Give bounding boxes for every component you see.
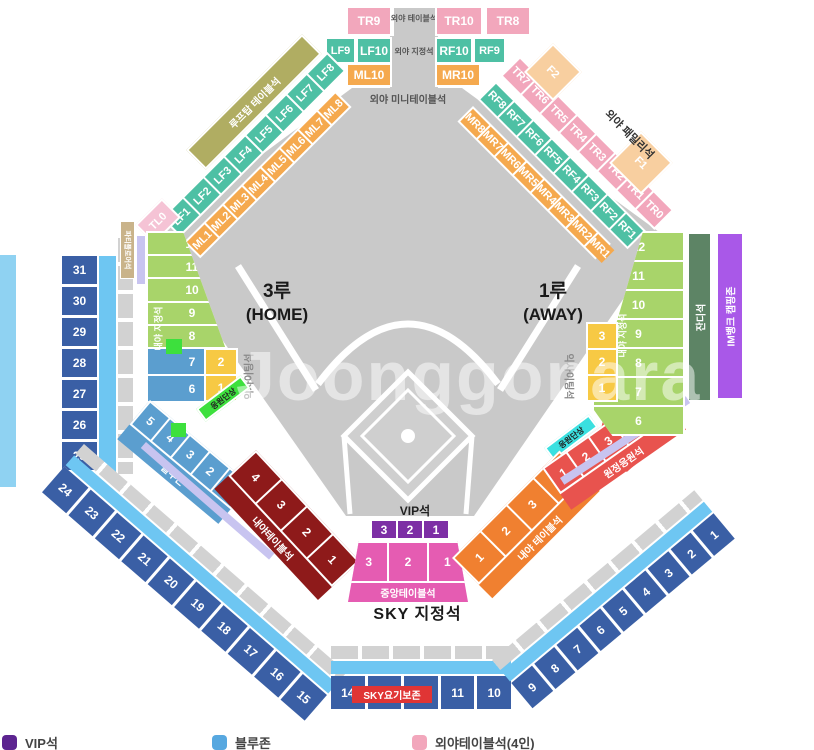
lavender-strip-left xyxy=(137,236,145,284)
legend-item-outfield-table: 외야테이블석(4인) xyxy=(412,733,535,750)
seat-section-lf10[interactable]: LF10 xyxy=(356,37,392,64)
third-base-home: (HOME) xyxy=(222,304,332,325)
sky-section-27[interactable]: 27 xyxy=(62,380,97,408)
outfield-reserved-label: 외야 지정석 xyxy=(390,46,438,57)
stadium-seat-map: 3루 (HOME) 1루 (AWAY) VIP석 TR9 외야 테이블석 TR1… xyxy=(0,0,814,750)
center-table-section-2[interactable]: 2 xyxy=(389,543,426,581)
first-base-number: 1루 xyxy=(498,280,608,304)
third-base-number: 3루 xyxy=(222,280,332,304)
exciting-section-3[interactable]: 3 xyxy=(588,324,616,348)
sky-walkway-bottom xyxy=(331,661,511,674)
vip-zone-label: VIP석 xyxy=(386,502,444,519)
legend-label-vip: VIP석 xyxy=(25,733,58,750)
exciting-section-2[interactable]: 2 xyxy=(206,350,236,374)
seat-section-tr10[interactable]: TR10 xyxy=(435,6,483,36)
seat-section-rf10[interactable]: RF10 xyxy=(435,37,473,64)
sky-section-11[interactable]: 11 xyxy=(441,676,475,709)
legend-label-bluezone: 블루존 xyxy=(235,733,271,750)
third-base-label: 3루 (HOME) xyxy=(222,280,332,325)
legend-swatch-vip xyxy=(2,735,17,750)
outer-walkway-band-left xyxy=(0,255,16,487)
center-table-label: 중앙테이블석 xyxy=(348,583,468,602)
legend-item-bluezone: 블루존 xyxy=(212,733,271,750)
exciting-section-1[interactable]: 1 xyxy=(588,376,616,400)
sky-section-30[interactable]: 30 xyxy=(62,287,97,315)
sky-section-26[interactable]: 26 xyxy=(62,411,97,439)
sky-walkway-left xyxy=(99,256,116,474)
cheer-mark-left-upper xyxy=(166,339,182,354)
seat-section-mr10[interactable]: MR10 xyxy=(435,63,481,87)
vip-sections: 321 xyxy=(370,519,450,540)
legend-swatch-outfield-table xyxy=(412,735,427,750)
outfield-mini-table-label: 외야 미니테이블석 xyxy=(358,91,458,106)
seat-section-tr8[interactable]: TR8 xyxy=(485,6,531,36)
seat-section-rf9[interactable]: RF9 xyxy=(473,37,506,64)
legend-item-vip: VIP석 xyxy=(2,733,58,750)
sky-reserved-label: SKY 지정석 xyxy=(350,605,485,625)
first-base-label: 1루 (AWAY) xyxy=(498,280,608,325)
seat-section-ml10[interactable]: ML10 xyxy=(346,63,392,87)
vip-section-1[interactable]: 1 xyxy=(424,521,448,538)
camping-zone[interactable] xyxy=(716,232,744,400)
party-floor-zone[interactable] xyxy=(120,221,135,279)
seat-section-tr9[interactable]: TR9 xyxy=(346,6,392,36)
legend-label-outfield-table: 외야테이블석(4인) xyxy=(435,733,535,750)
exciting-section-2[interactable]: 2 xyxy=(588,350,616,374)
sky-left-column: 31302928272625 xyxy=(62,256,97,470)
outfield-table-label: 외야 테이블석 xyxy=(390,13,438,24)
sky-section-29[interactable]: 29 xyxy=(62,318,97,346)
legend-swatch-bluezone xyxy=(212,735,227,750)
sky-section-31[interactable]: 31 xyxy=(62,256,97,284)
vip-section-2[interactable]: 2 xyxy=(398,521,422,538)
center-table-zone: 321 중앙테이블석 xyxy=(348,541,468,602)
sky-section-28[interactable]: 28 xyxy=(62,349,97,377)
cheer-mark-left-lower xyxy=(171,423,186,437)
grass-seat-zone[interactable] xyxy=(687,232,712,402)
exciting-right-sections: 321 xyxy=(586,322,618,402)
concourse-bottom xyxy=(331,646,511,659)
sky-section-10[interactable]: 10 xyxy=(477,676,511,709)
vip-section-3[interactable]: 3 xyxy=(372,521,396,538)
sky-yogibo-badge[interactable]: SKY요기보존 xyxy=(352,686,432,703)
